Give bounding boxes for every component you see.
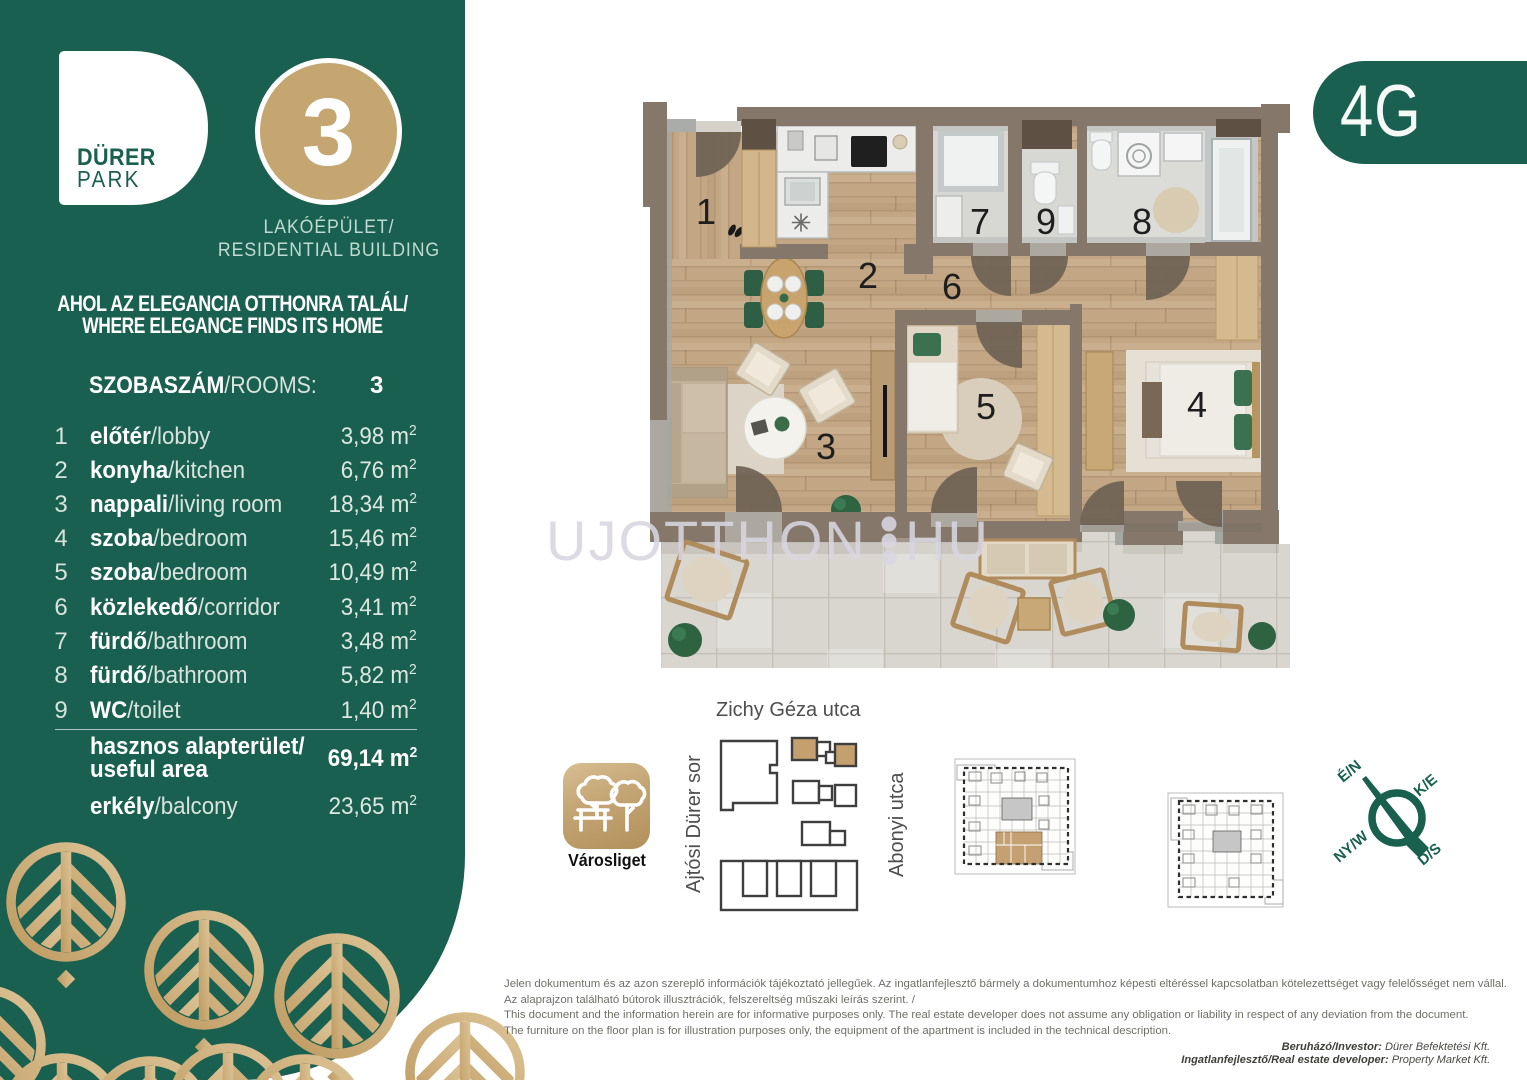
svg-text:É/N: É/N [1335, 757, 1365, 786]
svg-text:HU: HU [905, 509, 990, 572]
svg-text:9: 9 [1036, 201, 1056, 242]
svg-text:K/E: K/E [1411, 771, 1441, 800]
svg-text:8: 8 [1132, 201, 1152, 242]
svg-text:6: 6 [942, 266, 962, 307]
svg-text:7: 7 [970, 201, 990, 242]
svg-text:2: 2 [858, 255, 878, 296]
svg-text:3: 3 [816, 426, 836, 467]
svg-text:5: 5 [976, 386, 996, 427]
svg-text:UJOTTHON: UJOTTHON [546, 509, 867, 572]
svg-text:NY/W: NY/W [1331, 827, 1373, 866]
svg-text:4: 4 [1187, 384, 1207, 425]
svg-text:1: 1 [696, 191, 716, 232]
